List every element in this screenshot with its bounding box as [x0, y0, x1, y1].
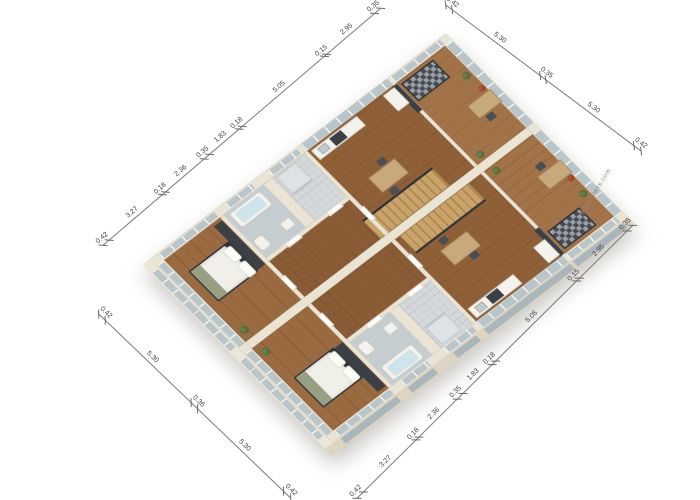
dim-label: 3.27 — [125, 205, 140, 219]
dim-label: 0.35 — [366, 0, 381, 14]
dim-segment: 3.27 — [352, 428, 416, 492]
dim-segment: 5.30 — [198, 397, 295, 491]
dim-label: 5.30 — [145, 350, 160, 364]
dim-label: 2.36 — [173, 164, 188, 178]
dim-segment: 5.30 — [546, 67, 643, 146]
dim-label: 5.05 — [525, 310, 540, 325]
isometric-floorplan — [150, 33, 628, 443]
dim-label: 2.95 — [591, 243, 606, 258]
dim-segment: 2.95 — [316, 1, 374, 54]
dim-label: 1.83 — [213, 130, 228, 144]
dim-label: 1.83 — [466, 367, 481, 382]
dim-label: 2.36 — [427, 406, 442, 421]
dim-label: 0.42 — [284, 483, 299, 497]
dim-label: 5.30 — [586, 101, 601, 115]
dim-label: 2.95 — [339, 22, 354, 36]
dim-label: 5.05 — [272, 80, 287, 94]
dim-label: 0.42 — [633, 136, 648, 150]
dim-label: 5.30 — [237, 438, 252, 452]
dim-segment: 5.05 — [231, 44, 323, 126]
floorplan-screenshot: 0.423.270.182.360.351.830.185.050.152.95… — [0, 0, 700, 500]
dim-label: 5.30 — [492, 31, 507, 45]
dim-label: 3.27 — [378, 454, 393, 469]
dim-label: 0.35 — [618, 217, 633, 232]
dim-segment: 5.30 — [106, 308, 203, 402]
